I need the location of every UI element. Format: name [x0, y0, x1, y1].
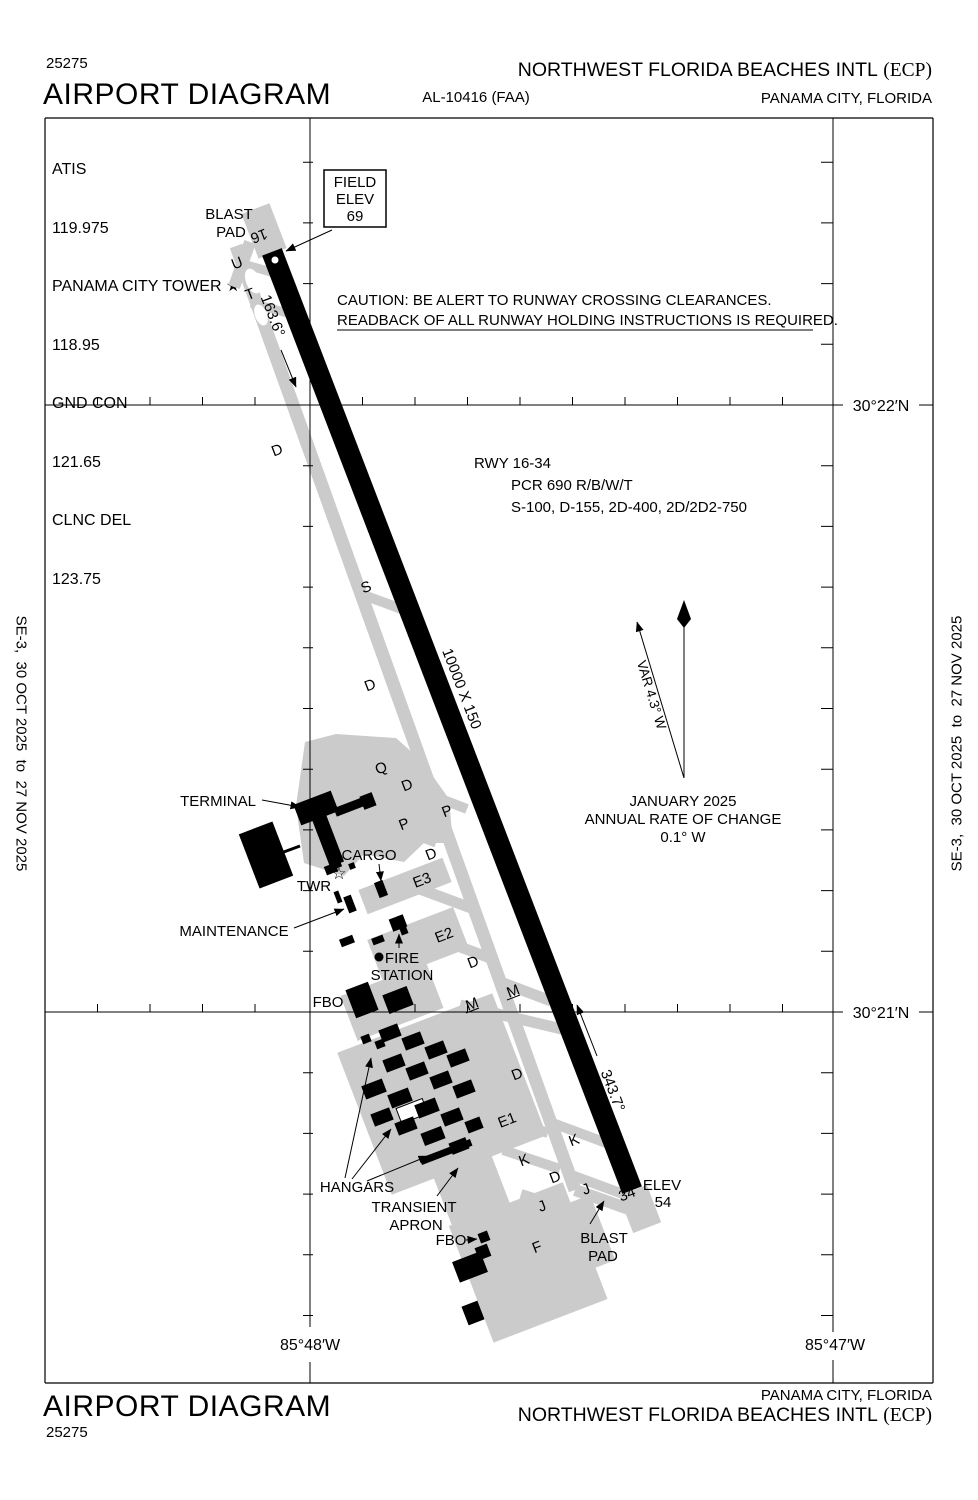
- blast-pad-north-line1: BLAST: [205, 206, 253, 223]
- longitude-label-west: 85°48′W: [280, 1337, 341, 1354]
- runway-34-elev-value: 54: [655, 1194, 672, 1211]
- footer-chart-code: 25275: [46, 1424, 88, 1441]
- caution-line2: READBACK OF ALL RUNWAY HOLDING INSTRUCTI…: [337, 312, 838, 329]
- runway-info-line2: PCR 690 R/B/W/T: [511, 477, 633, 494]
- terminal-arrow: [262, 800, 300, 807]
- parking-structure: [239, 821, 293, 888]
- taxiway-label-d1: D: [269, 441, 285, 461]
- field-elev-line2: ELEV: [336, 191, 374, 208]
- hangars-label: HANGARS: [320, 1179, 394, 1196]
- maintenance-building-2: [334, 891, 343, 904]
- maintenance-arrow: [294, 909, 344, 928]
- longitude-east-ticks: [821, 162, 833, 1315]
- field-elev-arrow: [286, 230, 332, 251]
- runway-info-line1: RWY 16-34: [474, 455, 551, 472]
- blast-pad-south-line1: BLAST: [580, 1230, 628, 1247]
- terminal-bridge: [281, 846, 300, 853]
- footer-airport-icao: (ECP): [883, 1405, 932, 1426]
- terminal-label: TERMINAL: [180, 793, 256, 810]
- footer-airport-name-text: NORTHWEST FLORIDA BEACHES INTL: [518, 1404, 878, 1426]
- small-building-3: [339, 935, 355, 947]
- fire-station-line2: STATION: [371, 967, 434, 984]
- compass-rate-label: ANNUAL RATE OF CHANGE: [585, 811, 782, 828]
- footer-airport-name: NORTHWEST FLORIDA BEACHES INTL (ECP): [518, 1404, 932, 1427]
- fbo-south-label: FBO: [436, 1232, 467, 1249]
- fire-station-line1: FIRE: [385, 950, 419, 967]
- footer-title: AIRPORT DIAGRAM: [43, 1390, 331, 1424]
- aprons-and-taxiways: [234, 203, 661, 1342]
- magnetic-variation-label: VAR 4.3° W: [634, 659, 669, 732]
- true-north-arrowhead-icon: [677, 600, 691, 628]
- blast-pad-south-line2: PAD: [588, 1248, 618, 1265]
- taxiway-label-d2: D: [362, 676, 378, 696]
- airport-map: 30°22′N 30°21′N 85°48′W 85°47′W: [0, 0, 978, 1500]
- airport-diagram-page: 25275 AIRPORT DIAGRAM AL-10416 (FAA) NOR…: [0, 0, 978, 1500]
- compass-date: JANUARY 2025: [629, 793, 736, 810]
- footer-city: PANAMA CITY, FLORIDA: [761, 1387, 932, 1404]
- runway-16-elevation-dot: [272, 257, 279, 264]
- latitude-north-ticks: [98, 397, 783, 405]
- latitude-label-south: 30°21′N: [853, 1005, 910, 1022]
- compass-rose: VAR 4.3° W JANUARY 2025 ANNUAL RATE OF C…: [585, 600, 782, 846]
- twr-label: TWR: [297, 878, 331, 895]
- caution-line1: CAUTION: BE ALERT TO RUNWAY CROSSING CLE…: [337, 292, 772, 309]
- cargo-label: CARGO: [341, 847, 396, 864]
- runway-info-line3: S-100, D-155, 2D-400, 2D/2D2-750: [511, 499, 747, 516]
- longitude-label-east: 85°47′W: [805, 1337, 866, 1354]
- maintenance-label: MAINTENANCE: [179, 923, 288, 940]
- cargo-arrow: [379, 864, 381, 881]
- field-elev-line1: FIELD: [334, 174, 377, 191]
- transient-apron-line2: APRON: [389, 1217, 442, 1234]
- cargo-apron: [358, 858, 451, 915]
- maintenance-building-1: [343, 895, 357, 914]
- tower-star-icon: ☆: [331, 864, 346, 884]
- runway-34-elev-label: ELEV: [643, 1177, 681, 1194]
- field-elev-value: 69: [347, 208, 364, 225]
- blast-pad-north-line2: PAD: [216, 224, 246, 241]
- fire-station-dot-icon: [375, 953, 384, 962]
- compass-rate-value: 0.1° W: [660, 829, 706, 846]
- transient-apron-line1: TRANSIENT: [371, 1199, 456, 1216]
- latitude-label-north: 30°22′N: [853, 398, 910, 415]
- fbo-north-label: FBO: [313, 994, 344, 1011]
